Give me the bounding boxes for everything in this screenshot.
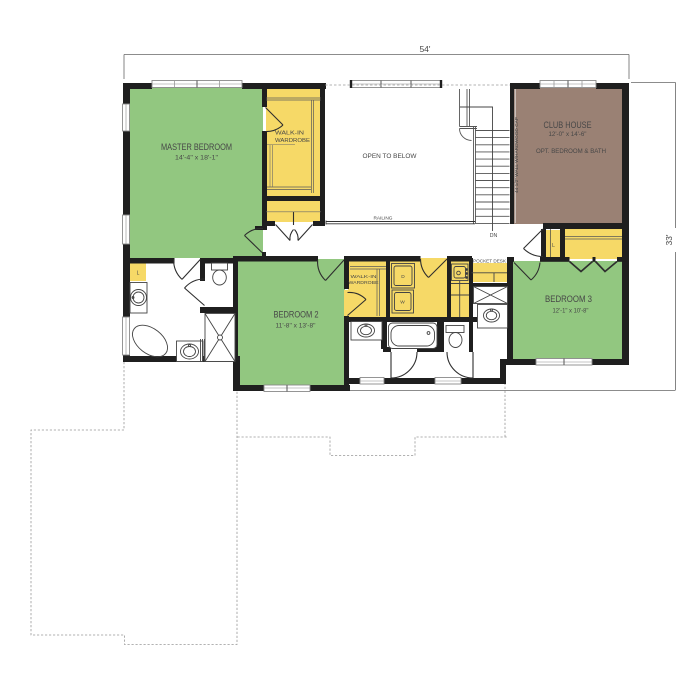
svg-text:12'-1" x 10'-8": 12'-1" x 10'-8": [553, 308, 589, 315]
svg-text:BEDROOM 2: BEDROOM 2: [274, 310, 319, 320]
svg-text:L: L: [137, 271, 140, 277]
svg-text:44 1/2" WALL W/HARDWOOD CAP: 44 1/2" WALL W/HARDWOOD CAP: [514, 117, 519, 193]
svg-text:11'-8" x 13'-8": 11'-8" x 13'-8": [276, 323, 316, 330]
svg-text:54': 54': [419, 44, 430, 54]
svg-text:RAILING: RAILING: [374, 216, 394, 221]
svg-text:CLUB HOUSE: CLUB HOUSE: [544, 120, 592, 130]
svg-text:POCKET DESK: POCKET DESK: [473, 259, 507, 264]
svg-text:W: W: [400, 300, 405, 306]
svg-text:WALK-IN: WALK-IN: [275, 131, 304, 137]
svg-text:14'-4" x 18'-1": 14'-4" x 18'-1": [175, 155, 219, 162]
svg-text:33': 33': [664, 234, 674, 245]
svg-text:WARDROBE: WARDROBE: [349, 280, 379, 285]
svg-text:L: L: [552, 243, 555, 249]
svg-text:WARDROBE: WARDROBE: [275, 138, 310, 144]
svg-text:DN: DN: [490, 233, 498, 239]
svg-text:12'-0" x 14'-6": 12'-0" x 14'-6": [549, 131, 588, 138]
svg-text:MASTER BEDROOM: MASTER BEDROOM: [161, 142, 232, 152]
svg-text:OPT. BEDROOM & BATH: OPT. BEDROOM & BATH: [536, 148, 606, 155]
svg-text:D: D: [401, 274, 405, 280]
svg-text:BEDROOM 3: BEDROOM 3: [545, 294, 592, 304]
svg-text:WALK-IN: WALK-IN: [351, 274, 377, 279]
svg-text:OPEN TO BELOW: OPEN TO BELOW: [363, 153, 418, 160]
